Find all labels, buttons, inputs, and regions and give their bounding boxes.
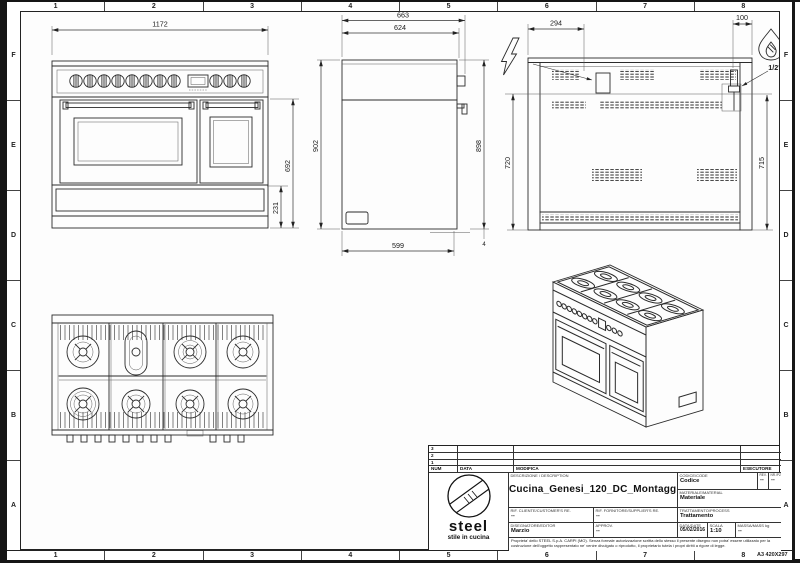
dim-front-width: 1172 [152, 20, 167, 29]
trattamento-value: Trattamento [678, 513, 781, 520]
col-label: 7 [596, 2, 694, 11]
rev-num: 3 [429, 446, 458, 453]
rear-vent-rail [542, 215, 738, 222]
row-label: B [780, 370, 792, 460]
rev-header-modifica: MODIFICA [514, 466, 741, 473]
col-label: 2 [104, 2, 202, 11]
oven-door-left [60, 100, 197, 183]
row-label: E [780, 100, 792, 190]
iso-view [553, 265, 703, 427]
dim-back-elec-x: 294 [550, 19, 562, 28]
rev-num: 2 [429, 453, 458, 460]
rev-value: -- [758, 477, 768, 484]
dim-side-depth-top: 624 [394, 23, 406, 32]
rev-label: REV. [758, 473, 768, 477]
row-label: D [780, 190, 792, 280]
storage-drawer [56, 189, 264, 211]
rev-header-esecutore: ESECUTORE [741, 466, 781, 473]
col-label: 5 [399, 2, 497, 11]
col-label: 8 [694, 2, 792, 11]
rev-num: 1 [429, 460, 458, 467]
col-label: 2 [104, 551, 202, 560]
grid-rows-left: F E D C B A [7, 11, 20, 550]
iso-hob [558, 267, 699, 326]
scala-cell: SCALA 1:10 [708, 523, 736, 538]
materiale-cell: MATERIALE/MATERIAL Materiale [678, 490, 781, 508]
control-display [188, 75, 208, 90]
rif-fornitore-value: -- [594, 513, 677, 520]
row-label: C [7, 280, 20, 370]
dim-back-height-left: 720 [503, 157, 512, 169]
codice-cell: CODICE/CODE Codice [678, 473, 758, 490]
col-label: 1 [7, 551, 104, 560]
top-view [52, 315, 273, 442]
side-view: 663 624 902 898 4 599 [311, 11, 489, 257]
data-value: 05/02/2016 [678, 528, 707, 534]
rif-cliente-value: -- [509, 513, 593, 520]
rev-header-data: DATA [458, 466, 514, 473]
nrpz-label: NR./PZ. [769, 473, 781, 477]
grid-columns-top: 1 2 3 4 5 6 7 8 [7, 2, 792, 12]
front-view: 1172 692 231 [52, 20, 299, 229]
disegnatore-value: Marzio [509, 528, 593, 535]
rif-cliente-cell: RIF. CLIENTE/CUSTOMER'S RE. -- [509, 508, 594, 523]
rif-fornitore-cell: RIF. FORNITORE/SUPPLIER'S RE. -- [594, 508, 678, 523]
massa-value: -- [736, 528, 781, 535]
data-cell: DATA/DATE 05/02/2016 [678, 523, 708, 538]
logo-tagline: stile in cucina [448, 534, 490, 542]
company-logo: steel stile in cucina [429, 473, 509, 550]
row-label: B [7, 370, 20, 460]
rating-label [346, 212, 368, 224]
row-label: A [7, 460, 20, 550]
row-label: F [7, 11, 20, 100]
massa-cell: MASSA/MASS kg -- [736, 523, 781, 538]
grid-rows-right: F E D C B A [780, 11, 792, 550]
approv-cell: APPROV. -- [594, 523, 678, 538]
junction-box [596, 73, 610, 93]
col-label: 6 [497, 551, 595, 560]
nrpz-cell: NR./PZ. -- [769, 473, 781, 490]
rev-cell: REV. -- [758, 473, 769, 490]
dim-back-gas-x: 100 [736, 13, 748, 22]
row-label: D [7, 190, 20, 280]
oven-door-right [200, 100, 263, 183]
iso-side-face [679, 392, 696, 407]
rev-header-num: NUM [429, 466, 458, 473]
col-label: 7 [596, 551, 694, 560]
dim-front-plinth: 231 [271, 202, 280, 214]
disegnatore-cell: DISEGNATORE/EDITOR Marzio [509, 523, 594, 538]
knob-tabs [67, 435, 244, 442]
dim-side-foot: 4 [482, 242, 486, 248]
scala-value: 1:10 [708, 528, 735, 535]
dim-front-body-height: 692 [283, 160, 292, 172]
col-label: 3 [203, 2, 301, 11]
row-label: C [780, 280, 792, 370]
lightning-icon [502, 38, 520, 75]
dim-side-height-right: 898 [474, 140, 483, 152]
control-knobs [70, 75, 250, 87]
col-label: 3 [203, 551, 301, 560]
nrpz-value: -- [769, 477, 781, 484]
col-label: 1 [7, 2, 104, 11]
col-label: 4 [301, 2, 399, 11]
dim-side-depth-base: 599 [392, 241, 404, 250]
grid-columns-bottom: 1 2 3 4 5 6 7 8 [7, 550, 792, 560]
back-view: 294 100 720 715 1/2" [503, 13, 782, 230]
description-label: DESCRIZIONE / DESCRIPTION [509, 473, 677, 478]
codice-value: Codice [678, 478, 757, 485]
trattamento-cell: TRATTAMENTO/PROCESS Trattamento [678, 508, 781, 523]
dim-side-height-left: 902 [311, 140, 320, 152]
row-label: E [7, 100, 20, 190]
drawing-title: Cucina_Genesi_120_DC_Montaggio [509, 484, 677, 495]
sheet-format-label: A3 420X297 [756, 552, 789, 558]
drawing-sheet: 1172 692 231 663 624 902 [0, 0, 800, 563]
approv-value: -- [594, 528, 677, 535]
revision-table: 3 2 1 NUM DATA MODIFICA ESECUTORE [429, 446, 781, 473]
row-label: A [780, 460, 792, 550]
legal-disclaimer: Proprieta' dello STEEL S.p.A. CARPI (MO)… [509, 538, 781, 551]
materiale-value: Materiale [678, 495, 781, 502]
steel-logo-icon [438, 473, 500, 521]
handle-profile [457, 104, 464, 108]
row-label: F [780, 11, 792, 100]
col-label: 4 [301, 551, 399, 560]
description-cell: DESCRIZIONE / DESCRIPTION Cucina_Genesi_… [509, 473, 678, 508]
iso-front-face [553, 290, 646, 417]
knob-profile [457, 76, 465, 86]
col-label: 5 [399, 551, 497, 560]
col-label: 6 [497, 2, 595, 11]
vent-slots [552, 69, 737, 181]
title-block: 3 2 1 NUM DATA MODIFICA ESECUTORE steel … [428, 445, 780, 550]
logo-name: steel [449, 519, 488, 534]
dim-back-height-right: 715 [757, 157, 766, 169]
